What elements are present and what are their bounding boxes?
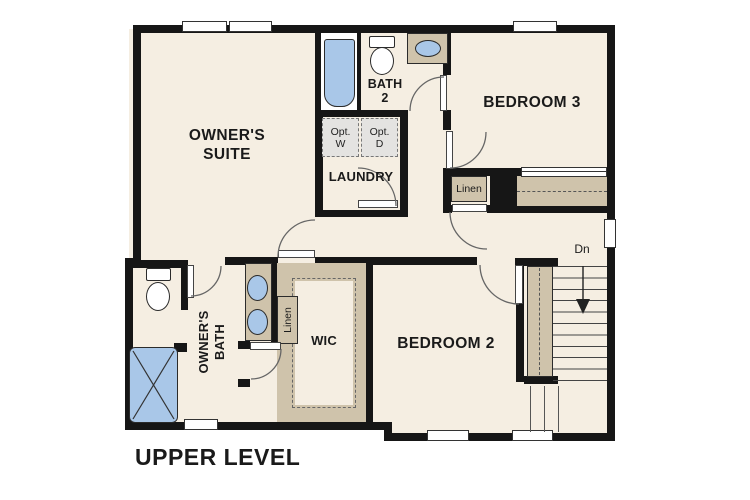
stair-railing-centerline	[539, 268, 540, 375]
window	[604, 219, 616, 248]
stair-treads	[553, 266, 607, 381]
wall-wic-door-stub-a	[238, 341, 250, 349]
floor-plan: Opt. W Opt. D Linen Linen	[0, 0, 750, 500]
window	[427, 430, 469, 441]
room-label-wic: WIC	[300, 334, 348, 348]
wall-toilet-alcove-top	[133, 260, 187, 268]
toilet-tank-owners	[146, 268, 171, 281]
room-label-owners-suite: OWNER'S SUITE	[157, 126, 297, 164]
sink-bath2	[415, 40, 441, 57]
room-label-bedroom3: BEDROOM 3	[462, 93, 602, 112]
sink-owners-a	[247, 275, 268, 301]
linen-hall-label: Linen	[456, 183, 482, 195]
shower	[129, 347, 178, 423]
window	[182, 21, 227, 32]
wall-linen-stub-b	[487, 205, 515, 213]
wall-closet-south	[515, 205, 607, 213]
door-leaf-bath-entry	[187, 265, 194, 298]
toilet-bowl-bath2	[370, 47, 394, 75]
page-title: UPPER LEVEL	[135, 444, 395, 471]
door-leaf-suite-wic	[278, 250, 315, 258]
stair-lower-line	[558, 386, 559, 432]
linen-closet-hall: Linen	[451, 176, 487, 202]
opt-d-line1: Opt.	[370, 126, 390, 138]
toilet-bowl-owners	[146, 282, 170, 311]
door-leaf-bedroom2	[515, 265, 523, 304]
opt-w-line1: Opt.	[331, 126, 351, 138]
room-label-bedroom2: BEDROOM 2	[376, 334, 516, 353]
room-label-bath2: BATH 2	[355, 77, 415, 105]
bypass-door-line	[521, 171, 607, 172]
wall-left-upper	[133, 25, 141, 268]
stair-lower-line	[544, 386, 545, 432]
wall-bath2-south	[318, 110, 403, 117]
bedroom3-closet-bypass-doors	[521, 167, 607, 177]
bedroom3-closet-rod	[517, 191, 607, 192]
door-leaf-bedroom3	[446, 131, 453, 169]
stairs-dn-label: Dn	[568, 242, 596, 256]
wall-laundry-south	[315, 210, 403, 217]
window	[512, 430, 553, 441]
door-leaf-bath2	[440, 75, 447, 111]
wall-bottom-right	[384, 433, 615, 441]
optional-dryer: Opt. D	[361, 118, 398, 157]
wall-wic-door-stub-b	[238, 379, 250, 387]
opt-w-line2: W	[336, 138, 346, 150]
door-leaf-linen-hall	[452, 204, 487, 212]
wall-linen-stub-a	[443, 205, 452, 213]
door-leaf-wic-bath	[250, 342, 281, 350]
room-label-laundry: LAUNDRY	[316, 170, 406, 184]
window	[184, 419, 218, 430]
wall-bedroom3-west-b	[443, 110, 451, 130]
optional-washer: Opt. W	[322, 118, 359, 157]
stair-lower-line	[530, 386, 531, 432]
window	[229, 21, 272, 32]
stair-railing	[527, 266, 553, 377]
opt-d-line2: D	[376, 138, 384, 150]
linen-cabinet-bath: Linen	[277, 296, 298, 344]
bathtub	[324, 39, 355, 107]
wall-bottom-left	[125, 422, 392, 430]
door-leaf-laundry	[358, 200, 398, 208]
sink-owners-b	[247, 309, 268, 335]
wall-laundry-east	[400, 110, 408, 217]
wall-wic-east	[365, 258, 373, 422]
linen-bath-label: Linen	[282, 307, 294, 333]
room-label-owners-bath: OWNER'S BATH	[195, 297, 229, 387]
window	[513, 21, 557, 32]
